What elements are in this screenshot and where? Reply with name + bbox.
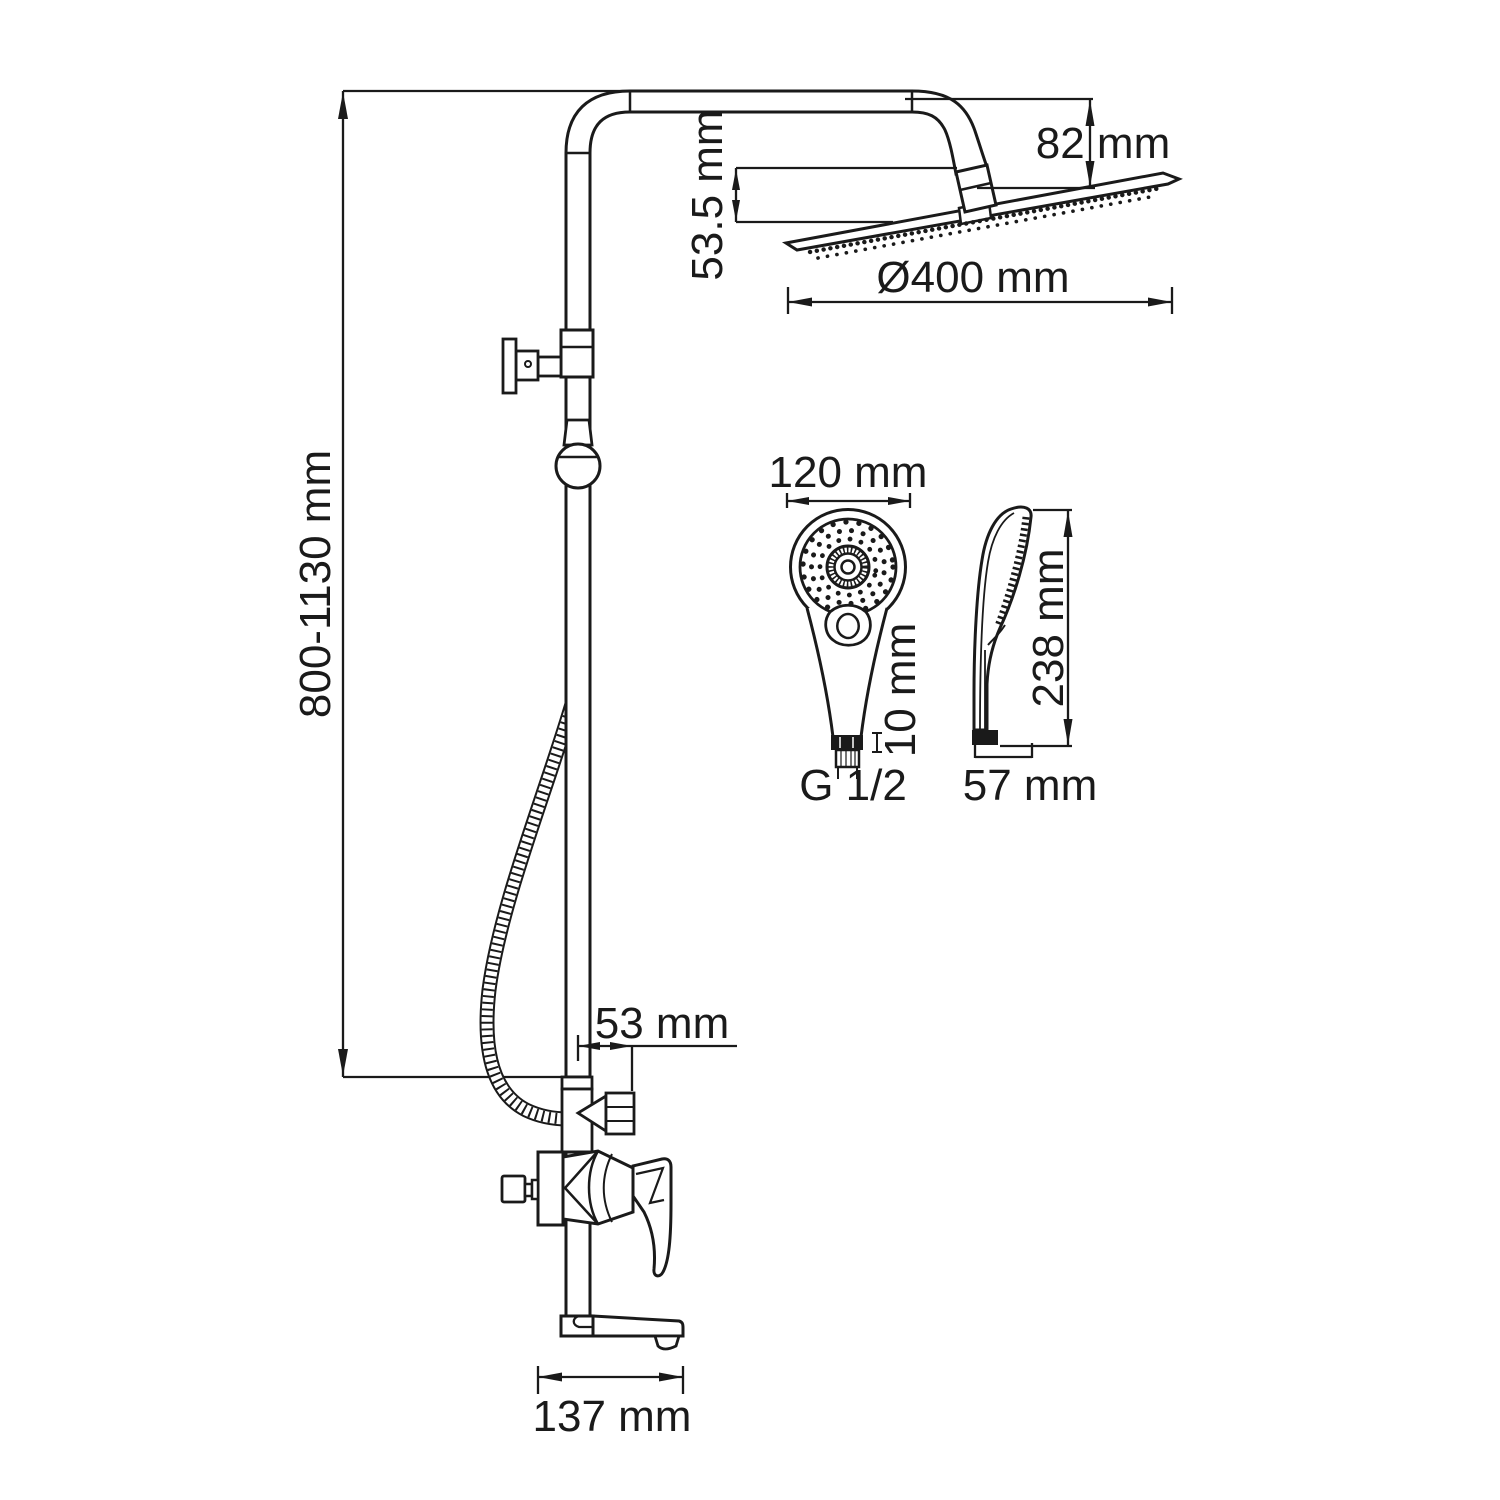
diverter-knob: [502, 1176, 525, 1202]
arrow-up-icon: [1064, 511, 1073, 537]
hand-shower-width-label: 120 mm: [769, 448, 928, 497]
handle-nut: [831, 735, 863, 750]
head-offset-label: 53.5 mm: [683, 109, 732, 280]
fitting-cap: [562, 1077, 592, 1089]
slider-ball: [556, 444, 600, 488]
mixer-body: [563, 1151, 633, 1224]
arrow-right-icon: [888, 497, 910, 505]
hand-shower-front-view: 120 mm 10 mm G 1/2: [769, 448, 928, 810]
knob-stem-collar: [532, 1180, 538, 1199]
wall-flange: [503, 339, 516, 393]
spout-projection-label: 137 mm: [533, 1392, 692, 1441]
arrow-up-icon: [338, 92, 348, 119]
arrow-left-icon: [787, 497, 809, 505]
hand-shower-height-label: 238 mm: [1024, 549, 1073, 708]
thread-size-label: G 1/2: [799, 761, 907, 810]
column-and-arm-pipe: [566, 91, 987, 1077]
spout-aerator: [655, 1336, 679, 1349]
bath-spout: [561, 1316, 683, 1349]
head-diameter-dimension: Ø400 mm: [788, 253, 1172, 314]
arrow-down-icon: [338, 1049, 348, 1076]
slider-collar: [564, 420, 592, 445]
width-dimension: 120 mm: [769, 448, 928, 508]
arrow-left-icon: [788, 298, 812, 307]
mixer-lever-handle: [633, 1159, 671, 1276]
arrow-left-icon: [538, 1373, 562, 1382]
arrow-right-icon: [659, 1373, 683, 1382]
head-drop-label: 82 mm: [1036, 119, 1170, 168]
center-knob-ring: [835, 554, 862, 581]
technical-drawing-canvas: 800-1130 mm: [0, 0, 1500, 1500]
arrow-up-icon: [732, 169, 740, 190]
bracket-plate: [516, 351, 538, 380]
spout-projection-dimension: 137 mm: [533, 1366, 692, 1441]
hose-nut: [606, 1093, 634, 1134]
bracket-stem: [538, 357, 561, 376]
spout-arm: [593, 1316, 683, 1336]
overall-height-label: 800-1130 mm: [291, 450, 340, 718]
connector-dimension: 10 mm: [872, 623, 925, 757]
outlet-offset-dimension: 53 mm: [578, 999, 737, 1091]
depth-dimension: 57 mm: [963, 743, 1097, 810]
side-nut: [972, 730, 998, 745]
mixer-mount-plate: [538, 1152, 563, 1225]
hand-shower-connector-label: 10 mm: [876, 623, 925, 757]
arrow-down-icon: [1064, 719, 1073, 745]
hose-outlet-fitting: [562, 1077, 634, 1152]
head-diameter-label: Ø400 mm: [876, 253, 1069, 302]
arrow-right-icon: [1148, 298, 1172, 307]
bracket-tee: [561, 330, 593, 377]
arrow-down-icon: [732, 200, 740, 221]
hand-shower-depth-label: 57 mm: [963, 761, 1097, 810]
outlet-offset-label: 53 mm: [595, 999, 729, 1048]
hand-shower-side-view: 238 mm 57 mm: [963, 507, 1097, 810]
